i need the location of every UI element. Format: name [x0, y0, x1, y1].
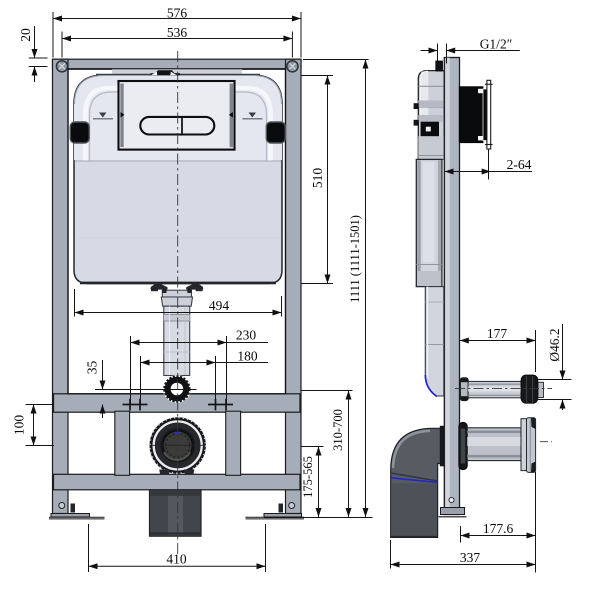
svg-text:177: 177: [487, 326, 508, 341]
svg-text:100: 100: [12, 415, 27, 436]
svg-text:510: 510: [310, 168, 325, 189]
svg-text:Ø46.2: Ø46.2: [547, 328, 562, 361]
svg-text:177.6: 177.6: [483, 521, 514, 536]
svg-text:337: 337: [460, 550, 481, 565]
svg-text:35: 35: [85, 361, 100, 375]
svg-text:536: 536: [167, 25, 188, 40]
svg-text:1111 (1111-1501): 1111 (1111-1501): [348, 215, 362, 303]
svg-text:20: 20: [18, 28, 33, 42]
svg-text:180: 180: [237, 348, 258, 363]
svg-text:576: 576: [167, 5, 188, 20]
svg-text:175-565: 175-565: [301, 456, 315, 498]
svg-text:494: 494: [209, 298, 230, 313]
svg-text:G1/2″: G1/2″: [480, 37, 513, 52]
svg-text:410: 410: [166, 552, 187, 567]
svg-text:310-700: 310-700: [331, 409, 345, 451]
svg-text:230: 230: [236, 328, 257, 343]
svg-text:2-64: 2-64: [507, 157, 532, 172]
